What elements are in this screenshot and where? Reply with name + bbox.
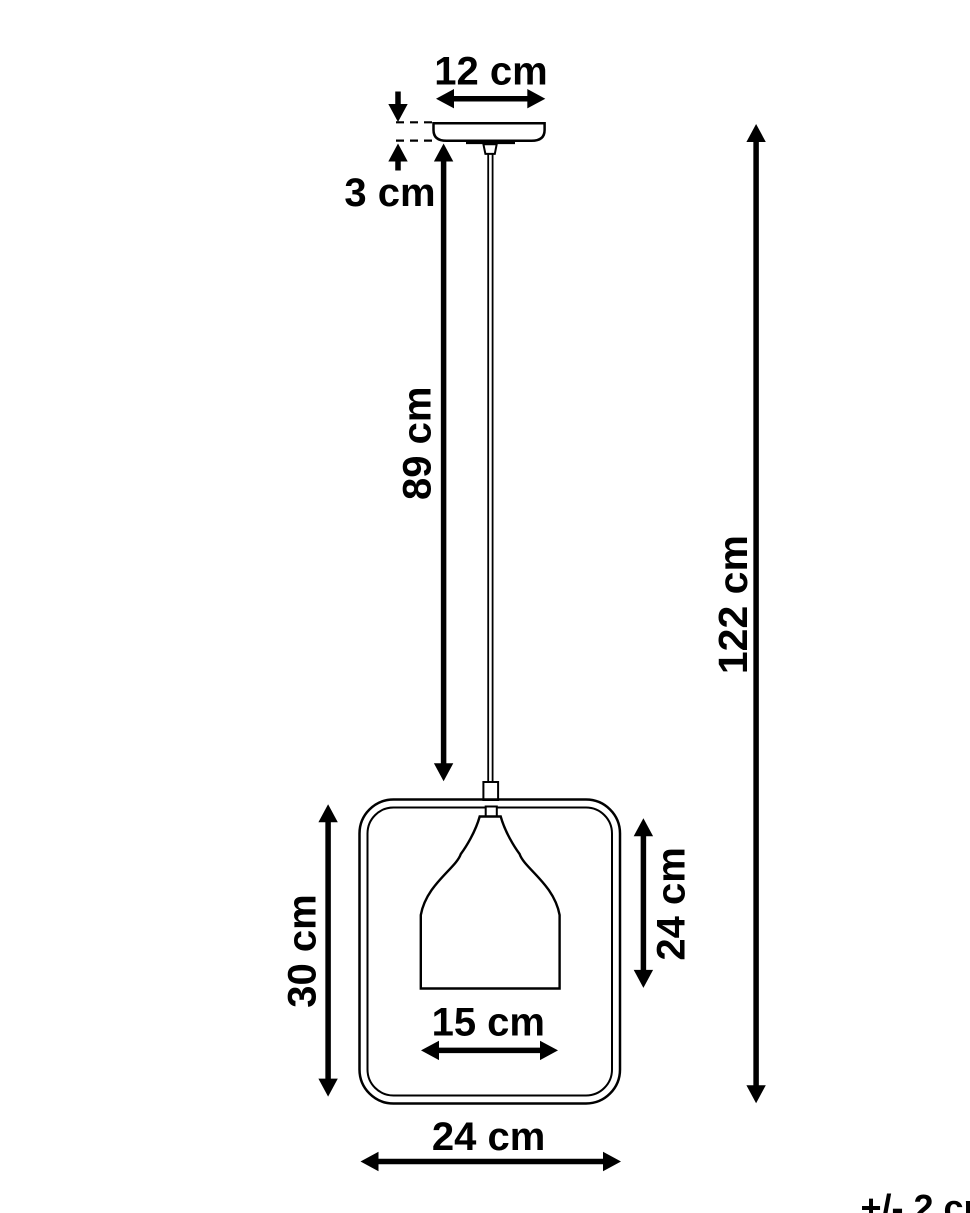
svg-text:30 cm: 30 cm	[281, 894, 325, 1007]
svg-text:3 cm: 3 cm	[344, 171, 435, 215]
svg-text:122 cm: 122 cm	[710, 535, 756, 674]
svg-text:24 cm: 24 cm	[432, 1115, 545, 1159]
svg-text:24 cm: 24 cm	[650, 847, 694, 960]
svg-text:12 cm: 12 cm	[434, 50, 547, 94]
svg-text:15 cm: 15 cm	[432, 1001, 545, 1045]
svg-text:+/- 2 cm: +/- 2 cm	[861, 1187, 970, 1213]
svg-text:89 cm: 89 cm	[396, 387, 440, 500]
